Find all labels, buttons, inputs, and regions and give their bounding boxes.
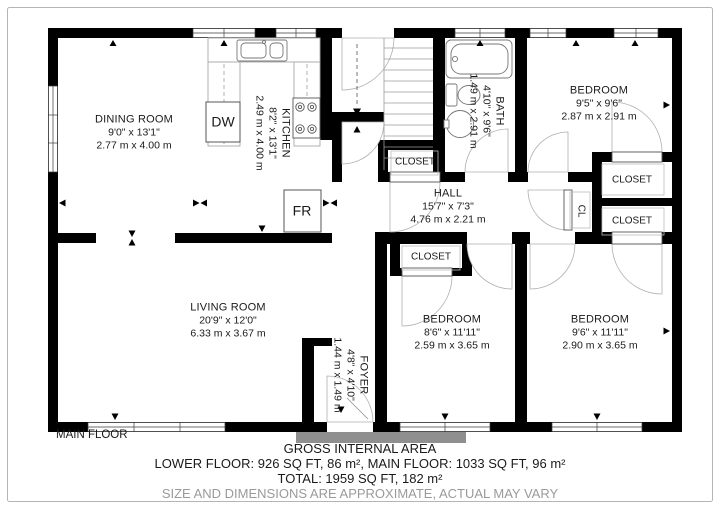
room-name: FOYER xyxy=(357,337,370,412)
room-dim-metric: 6.33 m x 3.67 m xyxy=(190,328,266,341)
floor-plan-page: DINING ROOM 9'0" x 13'1" 2.77 m x 4.00 m… xyxy=(0,0,720,509)
fridge-label: FR xyxy=(293,205,312,218)
room-dim-metric: 2.77 m x 4.00 m xyxy=(95,140,173,153)
room-name: BEDROOM xyxy=(562,314,637,327)
dishwasher-label: DW xyxy=(211,116,234,129)
room-dim-imperial: 8'2" x 13'1" xyxy=(266,95,279,170)
room-dim-metric: 2.49 m x 4.00 m xyxy=(253,95,266,170)
back-door xyxy=(342,38,394,90)
room-label-hall: HALL 15'7" x 7'3" 4.76 m x 2.21 m xyxy=(410,188,485,227)
room-label-foyer: FOYER 4'8" x 4'10" 1.44 m x 1.49 m xyxy=(331,337,370,412)
entry-door-opening xyxy=(327,422,373,432)
room-dim-imperial: 20'9" x 12'0" xyxy=(190,315,266,328)
room-dim-metric: 4.76 m x 2.21 m xyxy=(410,214,485,227)
floor-name-label: MAIN FLOOR xyxy=(56,429,128,441)
room-label-bath: BATH 4'10" x 9'6" 1.49 m x 2.91 m xyxy=(467,73,506,148)
total-area-line: TOTAL: 1959 SQ FT, 182 m² xyxy=(0,471,720,486)
closet-b-door-swing xyxy=(612,244,662,294)
room-name: BEDROOM xyxy=(561,85,636,98)
back-door-opening xyxy=(342,28,394,38)
room-name: KITCHEN xyxy=(279,95,292,170)
room-dim-imperial: 4'10" x 9'6" xyxy=(480,73,493,148)
room-dim-metric: 2.90 m x 3.65 m xyxy=(562,340,637,353)
floor-areas-line: LOWER FLOOR: 926 SQ FT, 86 m², MAIN FLOO… xyxy=(0,456,720,471)
closet-label-bedroom-mid: CLOSET xyxy=(411,251,451,264)
room-dim-metric: 1.49 m x 2.91 m xyxy=(467,73,480,148)
closet-label-cl: CL xyxy=(575,205,588,218)
bedroom1-door xyxy=(528,132,568,172)
closet-label-b: CLOSET xyxy=(612,215,652,228)
disclaimer-line: SIZE AND DIMENSIONS ARE APPROXIMATE, ACT… xyxy=(0,486,720,501)
room-label-kitchen: KITCHEN 8'2" x 13'1" 2.49 m x 4.00 m xyxy=(253,95,292,170)
room-name: LIVING ROOM xyxy=(190,302,266,315)
room-name: DINING ROOM xyxy=(95,114,173,127)
bedroom2-door xyxy=(467,244,512,289)
room-label-bedroom-top: BEDROOM 9'5" x 9'6" 2.87 m x 2.91 m xyxy=(561,85,636,124)
room-name: BEDROOM xyxy=(414,314,489,327)
room-dim-metric: 2.59 m x 3.65 m xyxy=(414,340,489,353)
room-label-bedroom-mid: BEDROOM 8'6" x 11'11" 2.59 m x 3.65 m xyxy=(414,314,489,353)
room-name: HALL xyxy=(410,188,485,201)
closet-label-hall: CLOSET xyxy=(395,156,435,169)
stair-door xyxy=(342,122,384,164)
room-dim-imperial: 9'6" x 11'11" xyxy=(562,327,637,340)
bedroom3-door xyxy=(530,244,575,289)
room-dim-imperial: 9'5" x 9'6" xyxy=(561,98,636,111)
room-name: BATH xyxy=(493,73,506,148)
room-label-bedroom-right: BEDROOM 9'6" x 11'11" 2.90 m x 3.65 m xyxy=(562,314,637,353)
closet-label-a: CLOSET xyxy=(612,174,652,187)
room-label-living: LIVING ROOM 20'9" x 12'0" 6.33 m x 3.67 … xyxy=(190,302,266,341)
room-dim-metric: 2.87 m x 2.91 m xyxy=(561,111,636,124)
room-dim-imperial: 4'8" x 4'10" xyxy=(344,337,357,412)
room-label-dining: DINING ROOM 9'0" x 13'1" 2.77 m x 4.00 m xyxy=(95,114,173,153)
stove xyxy=(293,98,320,138)
room-dim-imperial: 8'6" x 11'11" xyxy=(414,327,489,340)
room-dim-imperial: 9'0" x 13'1" xyxy=(95,127,173,140)
cl-door-swing xyxy=(528,190,568,230)
kitchen-sink xyxy=(237,40,287,61)
room-dim-metric: 1.44 m x 1.49 m xyxy=(331,337,344,412)
gross-area-title: GROSS INTERNAL AREA xyxy=(0,441,720,456)
room-dim-imperial: 15'7" x 7'3" xyxy=(410,201,485,214)
